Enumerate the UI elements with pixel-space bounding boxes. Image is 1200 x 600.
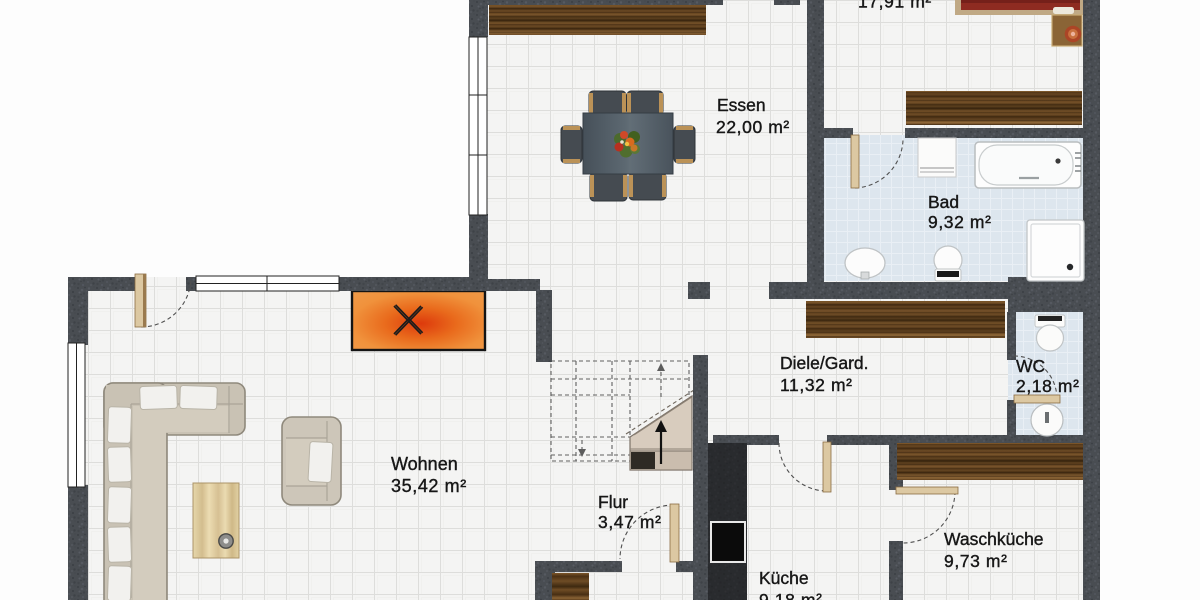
svg-text:9,73 m²: 9,73 m²: [944, 551, 1008, 571]
svg-text:WC: WC: [1016, 356, 1045, 376]
svg-text:9,18 m²: 9,18 m²: [759, 590, 823, 600]
svg-text:Bad: Bad: [928, 192, 959, 212]
svg-text:22,00 m²: 22,00 m²: [716, 117, 790, 137]
svg-text:Essen: Essen: [717, 95, 766, 115]
svg-text:11,32 m²: 11,32 m²: [780, 375, 853, 395]
svg-text:3,47 m²: 3,47 m²: [598, 512, 662, 532]
svg-text:Flur: Flur: [598, 492, 628, 512]
svg-text:Küche: Küche: [759, 568, 809, 588]
svg-text:Waschküche: Waschküche: [944, 529, 1044, 549]
svg-text:35,42 m²: 35,42 m²: [391, 476, 467, 496]
svg-text:Diele/Gard.: Diele/Gard.: [780, 353, 869, 373]
svg-text:9,32 m²: 9,32 m²: [928, 212, 992, 232]
svg-text:Wohnen: Wohnen: [391, 454, 458, 474]
svg-text:2,18 m²: 2,18 m²: [1016, 376, 1080, 396]
svg-text:17,91 m²: 17,91 m²: [858, 0, 932, 12]
